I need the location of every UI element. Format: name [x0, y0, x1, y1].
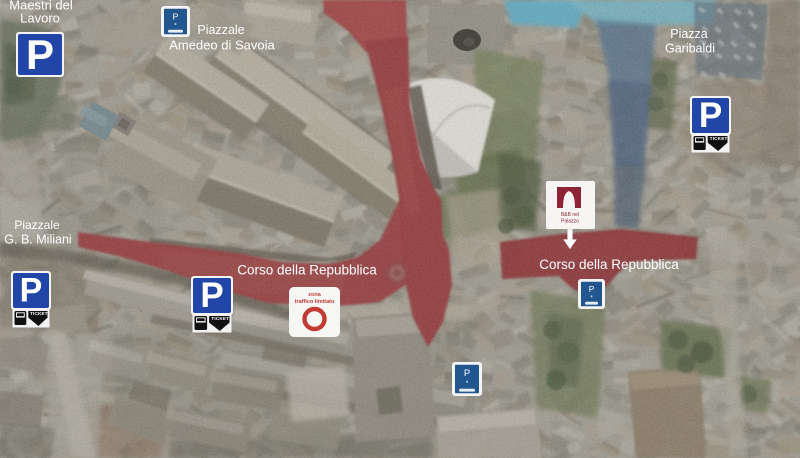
- svg-text:B&B nel: B&B nel: [561, 212, 579, 218]
- svg-text:P: P: [464, 368, 470, 379]
- svg-text:Piazza: Piazza: [670, 27, 708, 41]
- svg-text:Piazzale: Piazzale: [14, 218, 60, 232]
- svg-text:traffico limitato: traffico limitato: [295, 299, 335, 305]
- svg-text:P: P: [173, 12, 179, 22]
- svg-text:Corso della Repubblica: Corso della Repubblica: [539, 257, 679, 272]
- svg-text:TICKET: TICKET: [211, 316, 229, 321]
- svg-text:zona: zona: [308, 292, 321, 298]
- svg-text:TICKET: TICKET: [710, 136, 728, 141]
- svg-text:Corso della Repubblica: Corso della Repubblica: [237, 263, 377, 278]
- svg-text:P: P: [699, 96, 722, 135]
- svg-text:P: P: [20, 272, 43, 310]
- svg-text:TICKET: TICKET: [30, 311, 48, 316]
- svg-text:Piazzale: Piazzale: [197, 23, 244, 37]
- svg-text:P: P: [200, 276, 223, 315]
- svg-text:Amedeo di Savoia: Amedeo di Savoia: [169, 38, 275, 53]
- svg-text:Lavoro: Lavoro: [20, 11, 60, 26]
- svg-text:G. B. Miliani: G. B. Miliani: [4, 233, 71, 247]
- svg-text:P: P: [589, 284, 595, 294]
- svg-text:Palazzo: Palazzo: [561, 219, 579, 225]
- svg-text:P: P: [26, 31, 54, 78]
- svg-text:Garibaldi: Garibaldi: [665, 42, 715, 56]
